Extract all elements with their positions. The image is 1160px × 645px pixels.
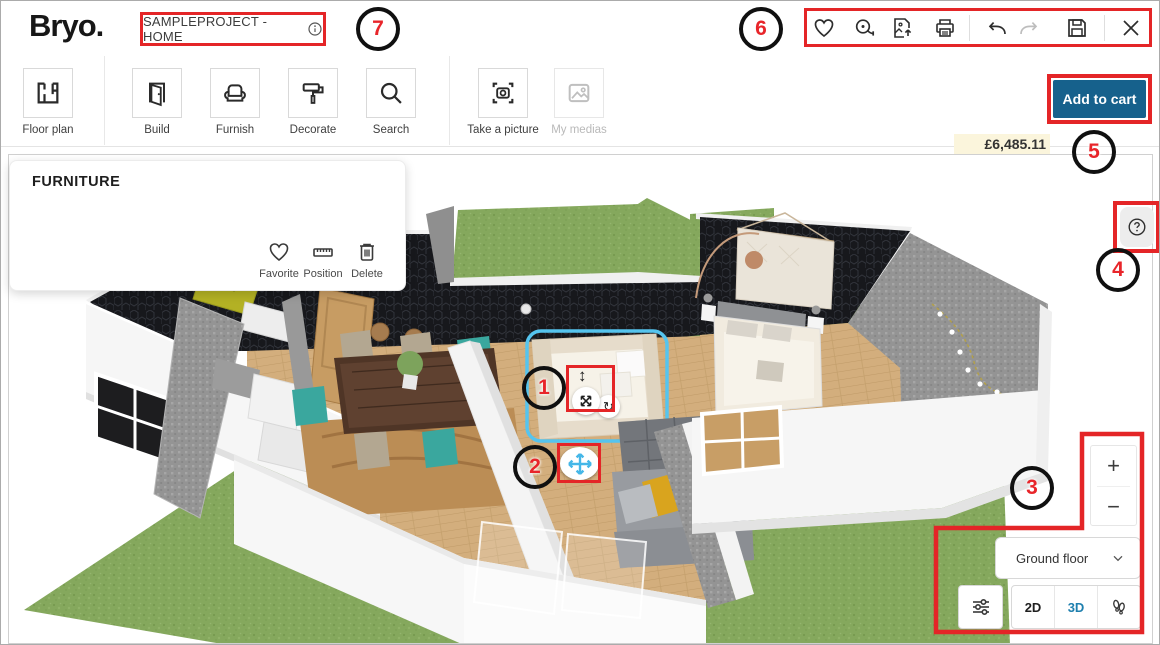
tool-furnish[interactable]: Furnish [210,68,260,118]
media-icon [554,68,604,118]
tool-label: Search [373,124,409,136]
paint-roller-icon [288,68,338,118]
resize-vertical-icon[interactable]: ↕ [578,366,587,386]
delete-label: Delete [341,268,393,280]
tool-label: My medias [551,124,607,136]
camera-icon [478,68,528,118]
delete-action[interactable]: Delete [341,240,393,280]
annotation-circle-7: 7 [356,7,400,51]
rotate-icon: ↻ [603,399,614,415]
header-divider [1104,15,1105,41]
move-gizmo[interactable] [560,447,599,480]
view-2d-button[interactable]: 2D [1012,586,1054,628]
view-mode-group: 2D 3D [1011,585,1141,629]
project-price: £6,485.11 [954,134,1050,154]
project-name: SAMPLEPROJECT - HOME [143,14,299,44]
zoom-controls: + − [1090,445,1137,526]
toolbar-divider [104,56,105,145]
furniture-panel: FURNITURE Favorite Position Delete [9,160,406,291]
tool-floor-plan[interactable]: Floor plan [23,68,73,118]
annotation-circle-6: 6 [739,7,783,51]
door-icon [132,68,182,118]
info-icon[interactable] [307,21,323,37]
move-arrows-icon [565,451,595,477]
ruler-icon [310,240,336,264]
app-window: Bryo. SAMPLEPROJECT - HOME [0,0,1160,645]
rotate-handle[interactable]: ↻ [597,395,620,418]
armchair-icon [210,68,260,118]
walkthrough-button[interactable] [1097,586,1140,628]
top-bar: Bryo. SAMPLEPROJECT - HOME [1,1,1159,57]
redo-icon[interactable] [1016,15,1042,41]
close-icon[interactable] [1118,15,1144,41]
floor-plan-icon [23,68,73,118]
zoom-in-button[interactable]: + [1091,446,1136,486]
tool-build[interactable]: Build [132,68,182,118]
tape-measure-icon[interactable] [852,15,878,41]
heart-icon [266,240,292,264]
add-to-cart-button[interactable]: Add to cart [1053,80,1146,118]
annotation-circle-1: 1 [522,366,566,410]
move-icon [576,391,596,411]
view-3d-button[interactable]: 3D [1054,586,1097,628]
annotation-circle-5: 5 [1072,130,1116,174]
floor-selector[interactable]: Ground floor [995,537,1141,579]
chevron-down-icon [1110,550,1126,566]
app-logo: Bryo. [29,8,103,44]
render-settings-button[interactable] [958,585,1003,629]
tool-label: Take a picture [467,124,539,136]
trash-icon [354,240,380,264]
floor-selector-value: Ground floor [1016,551,1088,566]
tool-label: Furnish [216,124,254,136]
help-icon [1126,216,1148,238]
main-toolbar: Floor plan Build Furnish Decorate Search [1,56,1159,147]
tool-search[interactable]: Search [366,68,416,118]
zoom-out-button[interactable]: − [1091,487,1136,527]
tool-my-medias[interactable]: My medias [554,68,604,118]
tool-label: Floor plan [22,124,73,136]
project-name-box[interactable]: SAMPLEPROJECT - HOME [140,12,326,46]
tool-label: Decorate [290,124,337,136]
undo-icon[interactable] [984,15,1010,41]
toolbar-divider [449,56,450,145]
add-media-icon[interactable] [889,15,915,41]
help-button[interactable] [1120,207,1154,247]
annotation-circle-4: 4 [1096,248,1140,292]
annotation-circle-2: 2 [513,445,557,489]
tool-label: Build [144,124,170,136]
tool-take-picture[interactable]: Take a picture [478,68,528,118]
header-divider [969,15,970,41]
sliders-icon [969,595,993,619]
annotation-circle-3: 3 [1010,466,1054,510]
furniture-panel-title: FURNITURE [32,174,120,190]
save-icon[interactable] [1064,15,1090,41]
move-handle[interactable] [572,387,600,415]
search-icon [366,68,416,118]
footsteps-icon [1108,596,1130,618]
print-icon[interactable] [932,15,958,41]
tool-decorate[interactable]: Decorate [288,68,338,118]
favorite-icon[interactable] [811,15,837,41]
